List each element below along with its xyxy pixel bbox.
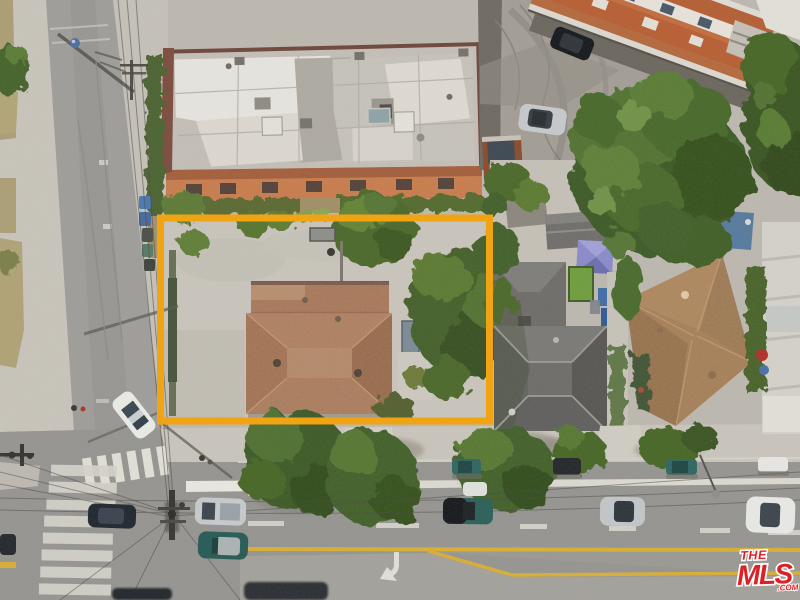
svg-text:.COM: .COM [777, 583, 799, 593]
